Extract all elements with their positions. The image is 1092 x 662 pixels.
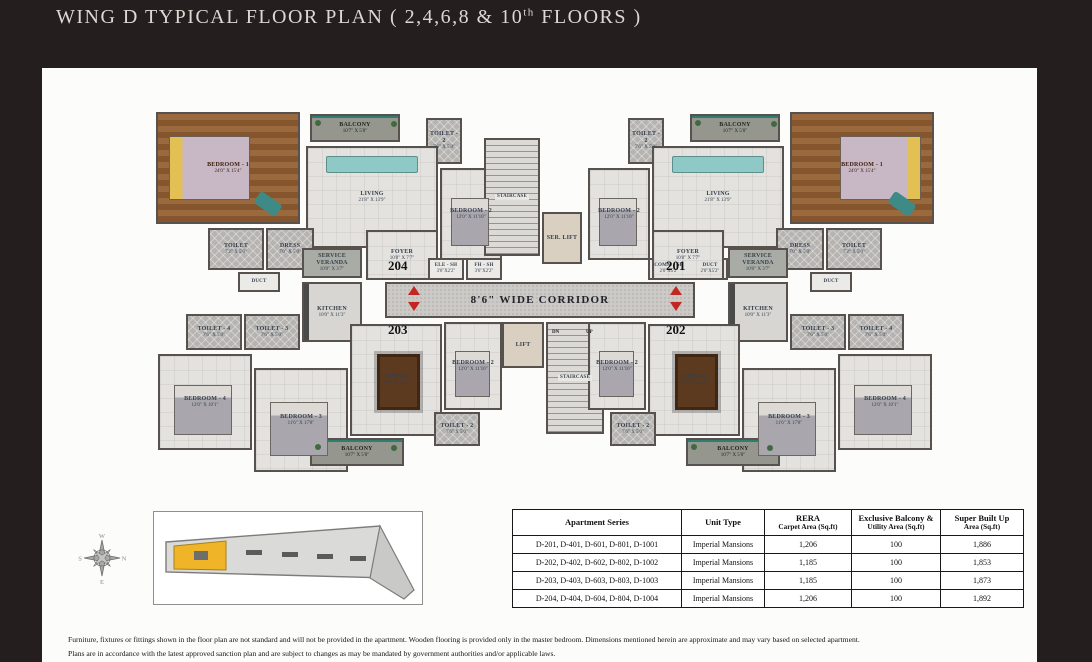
room-dimensions: 7'6" X 5'0" (203, 333, 225, 339)
room-dimensions: 11'6" X 17'8" (288, 421, 315, 427)
room-dimensions: 24'0" X 15'4" (215, 169, 242, 175)
room-label: BALCONY (719, 122, 750, 129)
room-label: TOILET - 2 (617, 423, 650, 430)
furniture-bed-s (758, 402, 816, 456)
room-dimensions: 7'6" X 5'0" (446, 430, 468, 436)
page-title: WING D TYPICAL FLOOR PLAN ( 2,4,6,8 & 10… (56, 6, 642, 29)
room-label: BEDROOM - 4 (864, 396, 906, 403)
table-cell: 1,873 (941, 571, 1024, 589)
table-cell: 1,185 (765, 553, 852, 571)
room-dimensions: 7'0" X 5'0" (279, 250, 301, 256)
room-dimensions: 7'6" X 5'0" (261, 333, 283, 339)
table-cell: 1,206 (765, 589, 852, 607)
room-label: 8'6" WIDE CORRIDOR (471, 294, 610, 307)
table-cell: Imperial Mansions (682, 535, 765, 553)
room-dimensions: 7'2" X 5'0" (843, 250, 865, 256)
room-service-veranda-201: SERVICE VERANDA10'0" X 3'7" (728, 248, 788, 278)
room-label: BEDROOM - 2 (598, 208, 640, 215)
floor-plan-canvas: BEDROOM - 124'0" X 15'4"BALCONY10'7" X 5… (150, 100, 940, 500)
area-table-head: Apartment SeriesUnit TypeRERACarpet Area… (513, 510, 1024, 536)
unit-number-203: 203 (388, 322, 408, 338)
table-row: D-201, D-401, D-601, D-801, D-1001Imperi… (513, 535, 1024, 553)
room-label: BALCONY (717, 446, 748, 453)
room-label: LIVING (360, 191, 383, 198)
room-dimensions: 10'0" X 3'7" (320, 267, 345, 273)
room-dimensions: 10'0" X 11'3" (745, 313, 772, 319)
table-cell: D-201, D-401, D-601, D-801, D-1001 (513, 535, 682, 553)
room-dimensions: 12'0" X 11'10" (458, 367, 487, 373)
room-balcony-top-204: BALCONY10'7" X 5'0" (310, 114, 400, 142)
room-dimensions: 24'0" X 15'4" (849, 169, 876, 175)
room-label: STAIRCASE (495, 194, 529, 200)
room-label: BEDROOM - 2 (596, 360, 638, 367)
room-label: LIVING (706, 191, 729, 198)
room-label: LIFT (516, 342, 531, 349)
room-label: SERVICE VERANDA (304, 253, 360, 267)
unit-number-202: 202 (666, 322, 686, 338)
room-dimensions: 21'8" X 13'9" (705, 198, 732, 204)
page-title-superscript: th (523, 6, 535, 18)
room-fh-sh: FH - SH3'6"X2'2" (466, 258, 502, 280)
table-cell: Imperial Mansions (682, 553, 765, 571)
furniture-bed-s (455, 351, 490, 397)
compass-label-left: S (78, 556, 82, 563)
table-header-2: RERACarpet Area (Sq.ft) (765, 510, 852, 536)
table-cell: 100 (852, 571, 941, 589)
key-plan-unit-mark (317, 554, 333, 559)
key-plan-unit-mark (282, 552, 298, 557)
table-header-3: Exclusive Balcony &Utility Area (Sq.ft) (852, 510, 941, 536)
room-bedroom-2-201: BEDROOM - 212'0" X 11'10" (588, 168, 650, 260)
table-cell: Imperial Mansions (682, 571, 765, 589)
table-cell: Imperial Mansions (682, 589, 765, 607)
room-label: TOILET - 2 (441, 423, 474, 430)
room-dimensions: 7'6" X 5'0" (635, 145, 657, 151)
room-corridor: 8'6" WIDE CORRIDOR (385, 282, 695, 318)
furniture-sofa (326, 156, 418, 173)
compass-rose: W N S E (74, 530, 130, 586)
key-plan (153, 511, 423, 605)
furniture-bed-s (451, 198, 489, 246)
room-label: KITCHEN (317, 306, 347, 313)
room-dimensions: 7'6" X 5'0" (865, 333, 887, 339)
room-dimensions: 7'6" X 5'0" (433, 145, 455, 151)
unit-number-201: 201 (666, 258, 686, 274)
page-root: { "page": { "title_prefix": "WING D TYPI… (0, 0, 1092, 662)
room-label: KITCHEN (743, 306, 773, 313)
stair-note-dn: DN (552, 330, 559, 335)
table-cell: D-203, D-403, D-603, D-803, D-1003 (513, 571, 682, 589)
table-header-0: Apartment Series (513, 510, 682, 536)
room-label: DUCT (252, 279, 267, 285)
room-dimensions: 3'6"X2'2" (437, 269, 456, 274)
room-dimensions: 12'0" X 10'1" (872, 403, 899, 409)
room-duct-204: DUCT (238, 272, 280, 292)
room-dimensions: 12'0" X 11'10" (602, 367, 631, 373)
furniture-sofa (672, 156, 764, 173)
room-dimensions: 7'0" X 5'0" (789, 250, 811, 256)
room-label: DINING (384, 374, 408, 381)
table-cell: 1,886 (941, 535, 1024, 553)
furniture-bed-s (854, 385, 912, 435)
table-row: D-203, D-403, D-603, D-803, D-1003Imperi… (513, 571, 1024, 589)
room-label: DRESS (280, 243, 300, 250)
room-label: DUCT (824, 279, 839, 285)
page-title-tail: FLOORS ) (535, 6, 642, 28)
room-dimensions: 10'7" X 5'0" (723, 129, 748, 135)
room-label: STAIRCASE (558, 375, 592, 381)
table-header-1: Unit Type (682, 510, 765, 536)
area-table: Apartment SeriesUnit TypeRERACarpet Area… (512, 509, 1024, 608)
room-dimensions: 12'0" X 11'10" (604, 215, 633, 221)
room-label: DRESS (790, 243, 810, 250)
room-service-lift: SER. LIFT (542, 212, 582, 264)
room-toilet-201: TOILET7'2" X 5'0" (826, 228, 882, 270)
page-title-text: WING D TYPICAL FLOOR PLAN ( 2,4,6,8 & 10 (56, 6, 523, 28)
room-bedroom-1-204: BEDROOM - 124'0" X 15'4" (156, 112, 300, 224)
room-bedroom-1-201: BEDROOM - 124'0" X 15'4" (790, 112, 934, 224)
entry-arrow-down (408, 302, 420, 311)
room-service-veranda-204: SERVICE VERANDA10'0" X 3'7" (302, 248, 362, 278)
room-dimensions: 21'8" X 12'0" (681, 381, 708, 387)
room-label: TOILET - 2 (428, 131, 460, 145)
room-label: TOILET - 2 (630, 131, 662, 145)
room-dimensions: 10'7" X 5'0" (721, 453, 746, 459)
table-cell: D-204, D-404, D-604, D-804, D-1004 (513, 589, 682, 607)
room-bedroom-2-202: BEDROOM - 212'0" X 11'10" (588, 322, 646, 410)
content-panel: BEDROOM - 124'0" X 15'4"BALCONY10'7" X 5… (42, 68, 1037, 662)
key-plan-unit-mark (350, 556, 366, 561)
room-label: BEDROOM - 1 (207, 162, 249, 169)
room-toilet-4-203: TOILET - 47'6" X 5'0" (186, 314, 242, 350)
furniture-bed-s (174, 385, 232, 435)
room-label: DINING (682, 374, 706, 381)
key-plan-drawing (154, 512, 422, 604)
room-dimensions: 7'6" X 5'0" (622, 430, 644, 436)
room-ele-sh: ELE - SH3'6"X2'2" (428, 258, 464, 280)
room-dimensions: 7'6" X 5'0" (807, 333, 829, 339)
compass-label-bottom: E (100, 579, 104, 586)
room-label: FOYER (391, 249, 413, 256)
room-dining-202: DINING21'8" X 12'0" (648, 324, 740, 436)
room-toilet-2-202: TOILET - 27'6" X 5'0" (610, 412, 656, 446)
room-label: BEDROOM - 1 (841, 162, 883, 169)
room-bedroom-4-202: BEDROOM - 412'0" X 10'1" (838, 354, 932, 450)
room-bedroom-4-203: BEDROOM - 412'0" X 10'1" (158, 354, 252, 450)
room-staircase-top: STAIRCASE (484, 138, 540, 256)
room-dimensions: 12'0" X 11'10" (456, 215, 485, 221)
table-cell: 1,206 (765, 535, 852, 553)
room-dining-203: DINING21'8" X 12'0" (350, 324, 442, 436)
room-toilet-204: TOILET7'2" X 5'0" (208, 228, 264, 270)
room-label: BEDROOM - 3 (280, 414, 322, 421)
compass-label-top: W (99, 533, 106, 540)
room-lift: LIFT (502, 322, 544, 368)
disclaimer-line-1: Furniture, fixtures or fittings shown in… (68, 635, 860, 644)
room-duct-201: DUCT (810, 272, 852, 292)
room-label: BALCONY (341, 446, 372, 453)
room-label: TOILET - 4 (860, 326, 893, 333)
room-label: TOILET (224, 243, 248, 250)
table-header-4: Super Built UpArea (Sq.ft) (941, 510, 1024, 536)
room-dimensions: 7'2" X 5'0" (225, 250, 247, 256)
room-toilet-4-202: TOILET - 47'6" X 5'0" (848, 314, 904, 350)
room-label: TOILET - 3 (802, 326, 835, 333)
room-toilet-2-203: TOILET - 27'6" X 5'0" (434, 412, 480, 446)
table-cell: 100 (852, 553, 941, 571)
room-dimensions: 21'8" X 12'0" (383, 381, 410, 387)
room-label: SER. LIFT (547, 235, 577, 242)
table-row: D-202, D-402, D-602, D-802, D-1002Imperi… (513, 553, 1024, 571)
table-row: D-204, D-404, D-604, D-804, D-1004Imperi… (513, 589, 1024, 607)
room-label: BEDROOM - 4 (184, 396, 226, 403)
room-dimensions: 10'0" X 11'3" (319, 313, 346, 319)
room-balcony-top-201: BALCONY10'7" X 5'0" (690, 114, 780, 142)
room-dimensions: 11'6" X 17'8" (776, 421, 803, 427)
furniture-bed-s (599, 198, 637, 246)
compass-label-right: N (122, 556, 127, 563)
table-cell: 100 (852, 535, 941, 553)
table-cell: 100 (852, 589, 941, 607)
room-dimensions: 3'6"X2'2" (475, 269, 494, 274)
room-toilet-3-202: TOILET - 37'6" X 5'0" (790, 314, 846, 350)
room-label: SERVICE VERANDA (730, 253, 786, 267)
room-dimensions: 21'8" X 13'9" (359, 198, 386, 204)
room-dimensions: 2'0"X5'2" (701, 269, 720, 274)
room-label: BALCONY (339, 122, 370, 129)
key-plan-core-mark (194, 551, 208, 560)
room-label: BEDROOM - 2 (452, 360, 494, 367)
table-cell: D-202, D-402, D-602, D-802, D-1002 (513, 553, 682, 571)
room-toilet-3-203: TOILET - 37'6" X 5'0" (244, 314, 300, 350)
room-dimensions: 10'7" X 5'0" (345, 453, 370, 459)
entry-arrow-up (670, 286, 682, 295)
furniture-bed-s (599, 351, 634, 397)
room-label: TOILET - 4 (198, 326, 231, 333)
stair-note-up: UP (586, 330, 593, 335)
room-label: BEDROOM - 2 (450, 208, 492, 215)
table-cell: 1,185 (765, 571, 852, 589)
room-dimensions: 10'7" X 5'0" (343, 129, 368, 135)
area-table-body: D-201, D-401, D-601, D-801, D-1001Imperi… (513, 535, 1024, 607)
disclaimer-line-2: Plans are in accordance with the latest … (68, 649, 555, 658)
table-cell: 1,892 (941, 589, 1024, 607)
unit-number-204: 204 (388, 258, 408, 274)
room-bedroom-2-203: BEDROOM - 212'0" X 11'10" (444, 322, 502, 410)
table-cell: 1,853 (941, 553, 1024, 571)
room-label: TOILET - 3 (256, 326, 289, 333)
room-label: TOILET (842, 243, 866, 250)
entry-arrow-up (408, 286, 420, 295)
entry-arrow-down (670, 302, 682, 311)
room-dimensions: 10'0" X 3'7" (746, 267, 771, 273)
room-label: FOYER (677, 249, 699, 256)
room-dimensions: 12'0" X 10'1" (192, 403, 219, 409)
key-plan-unit-mark (246, 550, 262, 555)
room-label: BEDROOM - 3 (768, 414, 810, 421)
